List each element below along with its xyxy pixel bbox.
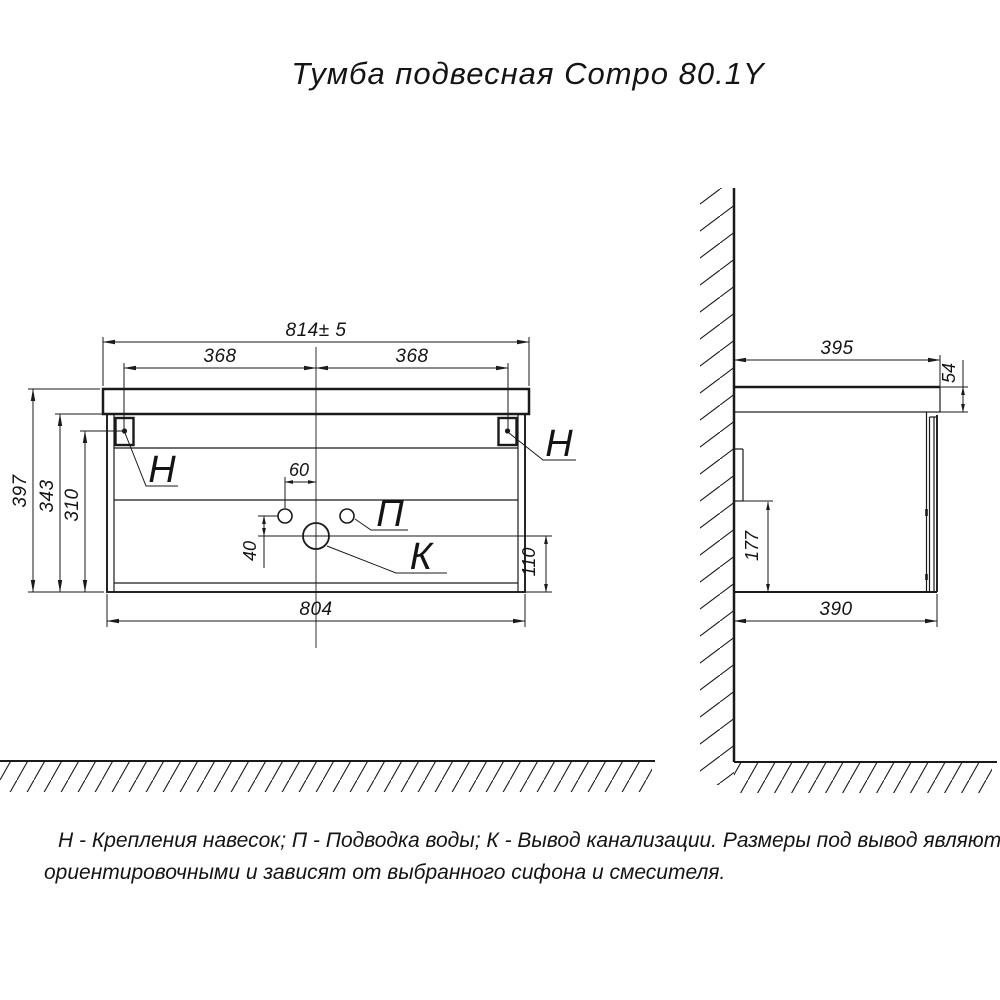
water-inlet-hole-left — [278, 509, 292, 523]
svg-text:368: 368 — [203, 346, 236, 367]
svg-text:368: 368 — [395, 346, 428, 367]
dim-hanger-height: 310 — [62, 431, 122, 592]
svg-text:177: 177 — [742, 530, 762, 561]
floor-hatching-left — [0, 762, 652, 792]
side-view: 395 54 177 390 — [700, 188, 968, 785]
svg-text:804: 804 — [299, 599, 332, 620]
wall-hatching — [700, 188, 734, 785]
floor-section — [0, 761, 997, 793]
svg-text:310: 310 — [62, 488, 83, 521]
floor-hatching-right — [734, 763, 992, 793]
water-inlet-hole-right — [340, 509, 354, 523]
drawing-sheet: Тумба подвесная Compo 80.1Y — [0, 0, 1000, 1000]
svg-text:60: 60 — [289, 460, 309, 480]
callout-hanger-left-label: Н — [148, 449, 176, 491]
dim-water-holes-spacing: 60 — [285, 460, 316, 508]
svg-text:814± 5: 814± 5 — [286, 320, 347, 341]
svg-text:40: 40 — [240, 541, 260, 561]
technical-drawing-canvas: Тумба подвесная Compo 80.1Y — [0, 0, 1000, 1000]
svg-text:110: 110 — [519, 548, 539, 577]
svg-text:343: 343 — [37, 479, 58, 512]
svg-text:390: 390 — [819, 599, 852, 620]
dim-top-thickness: 54 — [939, 360, 968, 412]
dim-drain-bottom-height: 110 — [519, 536, 552, 592]
legend-line-2: ориентировочными и зависят от выбранного… — [44, 861, 725, 884]
callout-hanger-right: Н — [509, 423, 576, 465]
drawing-title: Тумба подвесная Compo 80.1Y — [291, 56, 766, 91]
callout-water-supply: П — [355, 493, 408, 535]
callout-water-label: П — [376, 493, 404, 535]
hanging-rail-profile — [734, 449, 743, 501]
svg-text:54: 54 — [939, 363, 959, 383]
front-view: Н Н П К 814± 5 368 — [10, 320, 576, 648]
dim-hanger-bottom-height: 177 — [742, 501, 773, 592]
svg-text:397: 397 — [10, 473, 31, 507]
dim-overall-depth: 395 — [734, 338, 940, 386]
legend-note: Н - Крепления навесок; П - Подводка воды… — [44, 829, 1000, 884]
dim-cabinet-depth: 390 — [734, 594, 937, 627]
bracket-mark-left — [122, 428, 127, 433]
svg-text:395: 395 — [820, 338, 853, 359]
callout-drain-outlet: К — [327, 536, 447, 578]
dim-drain-drop: 40 — [240, 516, 264, 568]
callout-hanger-right-label: Н — [545, 423, 573, 465]
countertop-side-outline — [734, 387, 940, 412]
callout-drain-label: К — [410, 536, 435, 578]
legend-line-1: Н - Крепления навесок; П - Подводка воды… — [58, 829, 1000, 852]
